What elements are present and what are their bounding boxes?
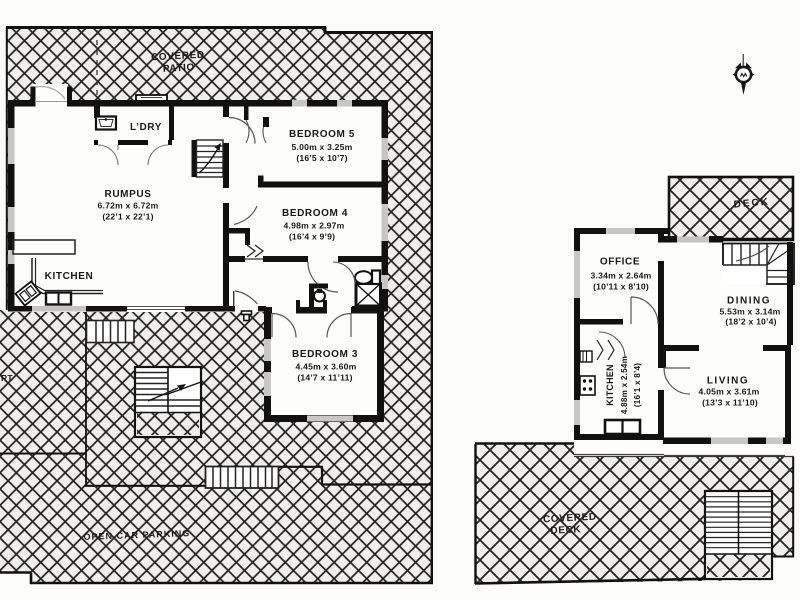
svg-text:DINING: DINING bbox=[727, 296, 771, 307]
svg-text:5.00m x 3.25m: 5.00m x 3.25m bbox=[292, 142, 353, 152]
svg-text:(13’3 x 11’10): (13’3 x 11’10) bbox=[702, 398, 758, 408]
svg-text:(16’5 x 10’7): (16’5 x 10’7) bbox=[296, 153, 347, 163]
svg-text:(16’4 x 9’9): (16’4 x 9’9) bbox=[289, 232, 335, 242]
svg-text:BEDROOM 3: BEDROOM 3 bbox=[292, 349, 358, 360]
svg-text:(22’1 x 22’1): (22’1 x 22’1) bbox=[102, 212, 153, 222]
svg-text:(14’7 x 11’11): (14’7 x 11’11) bbox=[297, 373, 352, 383]
svg-text:RT: RT bbox=[1, 373, 13, 383]
svg-text:KITCHEN: KITCHEN bbox=[605, 364, 615, 405]
svg-text:6.72m x 6.72m: 6.72m x 6.72m bbox=[98, 201, 159, 211]
svg-text:RUMPUS: RUMPUS bbox=[105, 189, 152, 200]
svg-text:BEDROOM 5: BEDROOM 5 bbox=[289, 129, 355, 140]
svg-text:4.05m x 3.61m: 4.05m x 3.61m bbox=[699, 387, 760, 397]
svg-text:(18’2 x 10’4): (18’2 x 10’4) bbox=[725, 317, 776, 327]
svg-text:4.98m x 2.97m: 4.98m x 2.97m bbox=[284, 221, 345, 231]
svg-text:OFFICE: OFFICE bbox=[600, 257, 640, 268]
svg-text:L’DRY: L’DRY bbox=[130, 122, 162, 133]
svg-text:3.34m x 2.64m: 3.34m x 2.64m bbox=[591, 271, 652, 281]
svg-text:PATIO: PATIO bbox=[163, 62, 196, 75]
svg-text:5.53m x 3.14m: 5.53m x 3.14m bbox=[720, 307, 781, 317]
svg-text:KITCHEN: KITCHEN bbox=[45, 271, 94, 282]
svg-text:LIVING: LIVING bbox=[707, 376, 749, 387]
svg-text:DECK: DECK bbox=[550, 524, 581, 537]
svg-text:(16’1 x 8’4): (16’1 x 8’4) bbox=[633, 363, 642, 407]
svg-text:4.45m x 3.60m: 4.45m x 3.60m bbox=[296, 362, 357, 372]
svg-text:4.88m x 2.54m: 4.88m x 2.54m bbox=[620, 356, 629, 414]
svg-text:BEDROOM 4: BEDROOM 4 bbox=[282, 208, 348, 219]
svg-text:(10’11 x 8’10): (10’11 x 8’10) bbox=[593, 282, 649, 292]
